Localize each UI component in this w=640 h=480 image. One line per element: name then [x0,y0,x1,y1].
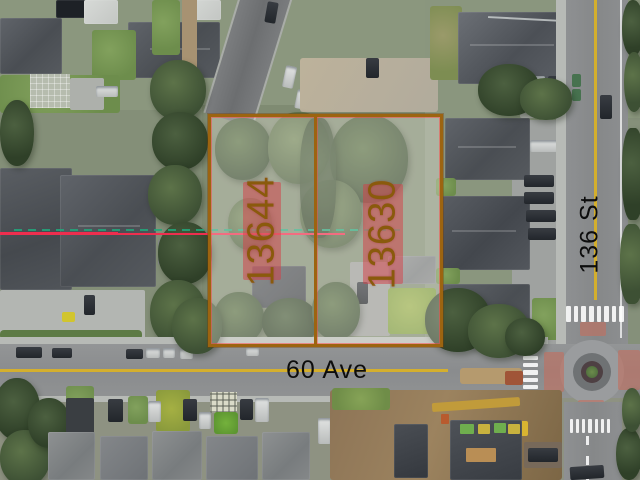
house-roof [445,118,530,180]
car [183,399,197,421]
brick-crosswalk [580,322,606,336]
car [246,347,259,356]
lawn [332,388,390,410]
lot-number-west: 13644 [241,176,284,287]
townhouse-roof [100,436,148,480]
porta-potty [441,414,449,424]
sidewalk [556,0,566,352]
tree [150,60,206,120]
car [96,86,118,97]
patio-tiles [210,392,237,413]
brick-crosswalk [618,350,640,390]
brick-median-tip [505,371,523,385]
new-build-roof [394,424,428,478]
car [52,348,72,358]
car [255,398,269,422]
tree [624,52,640,112]
tree [622,388,640,432]
yellow-object [62,312,75,322]
car [84,295,95,315]
car [524,175,554,187]
aerial-photo: 13644 13630 60 Ave 136 St [0,0,640,480]
townhouse-roof [152,431,202,480]
crosswalk [566,306,624,322]
tree [622,128,640,220]
car [126,349,143,359]
roof-panel [460,424,474,434]
plywood [466,448,496,462]
center-line [0,369,448,372]
car [570,465,605,480]
house-roof [84,0,118,24]
car [163,348,175,358]
car [16,347,42,358]
lot-label-west: 13644 [243,182,281,280]
car [108,399,123,422]
roof-panel [494,423,506,433]
tree [0,100,34,166]
tree [620,224,640,304]
house-roof [0,18,62,74]
house-roof [60,175,156,287]
road-136-st [566,0,628,356]
tree [152,112,208,170]
crosswalk [570,419,610,433]
solar-roof [56,0,86,18]
car [526,210,556,222]
lot-divider [314,117,317,344]
roundabout-green [586,366,598,378]
brick-crosswalk [544,352,564,392]
street-label-60-ave: 60 Ave [286,356,368,385]
car [600,95,612,119]
tree [616,428,640,480]
bright-lawn [214,412,238,434]
townhouse-roof [262,432,310,480]
dark-roof [66,398,94,434]
measure-line-red-bold [0,232,118,235]
car [148,401,161,422]
car [366,58,379,78]
patio [30,74,70,108]
tree [158,222,212,284]
car [199,412,211,429]
car [146,348,160,358]
house-roof [440,196,530,270]
car [240,399,253,420]
crosswalk [523,356,538,389]
tree [520,78,572,120]
street-label-136-st: 136 St [562,196,618,272]
car [528,228,556,240]
lawn [92,30,136,80]
car [524,192,554,204]
lot-number-east: 13630 [362,179,405,290]
green-bin [572,89,581,101]
tree [622,0,640,56]
car [528,448,558,462]
lawn [152,0,180,55]
townhouse-roof [206,436,258,480]
tree [505,318,545,356]
townhouse-roof [48,432,95,480]
car [530,140,558,152]
roof-panel [508,424,520,434]
roof-panel [478,424,490,434]
lot-label-east: 13630 [363,184,403,284]
lawn [128,396,148,424]
green-bin [572,74,581,87]
tree [148,165,202,225]
